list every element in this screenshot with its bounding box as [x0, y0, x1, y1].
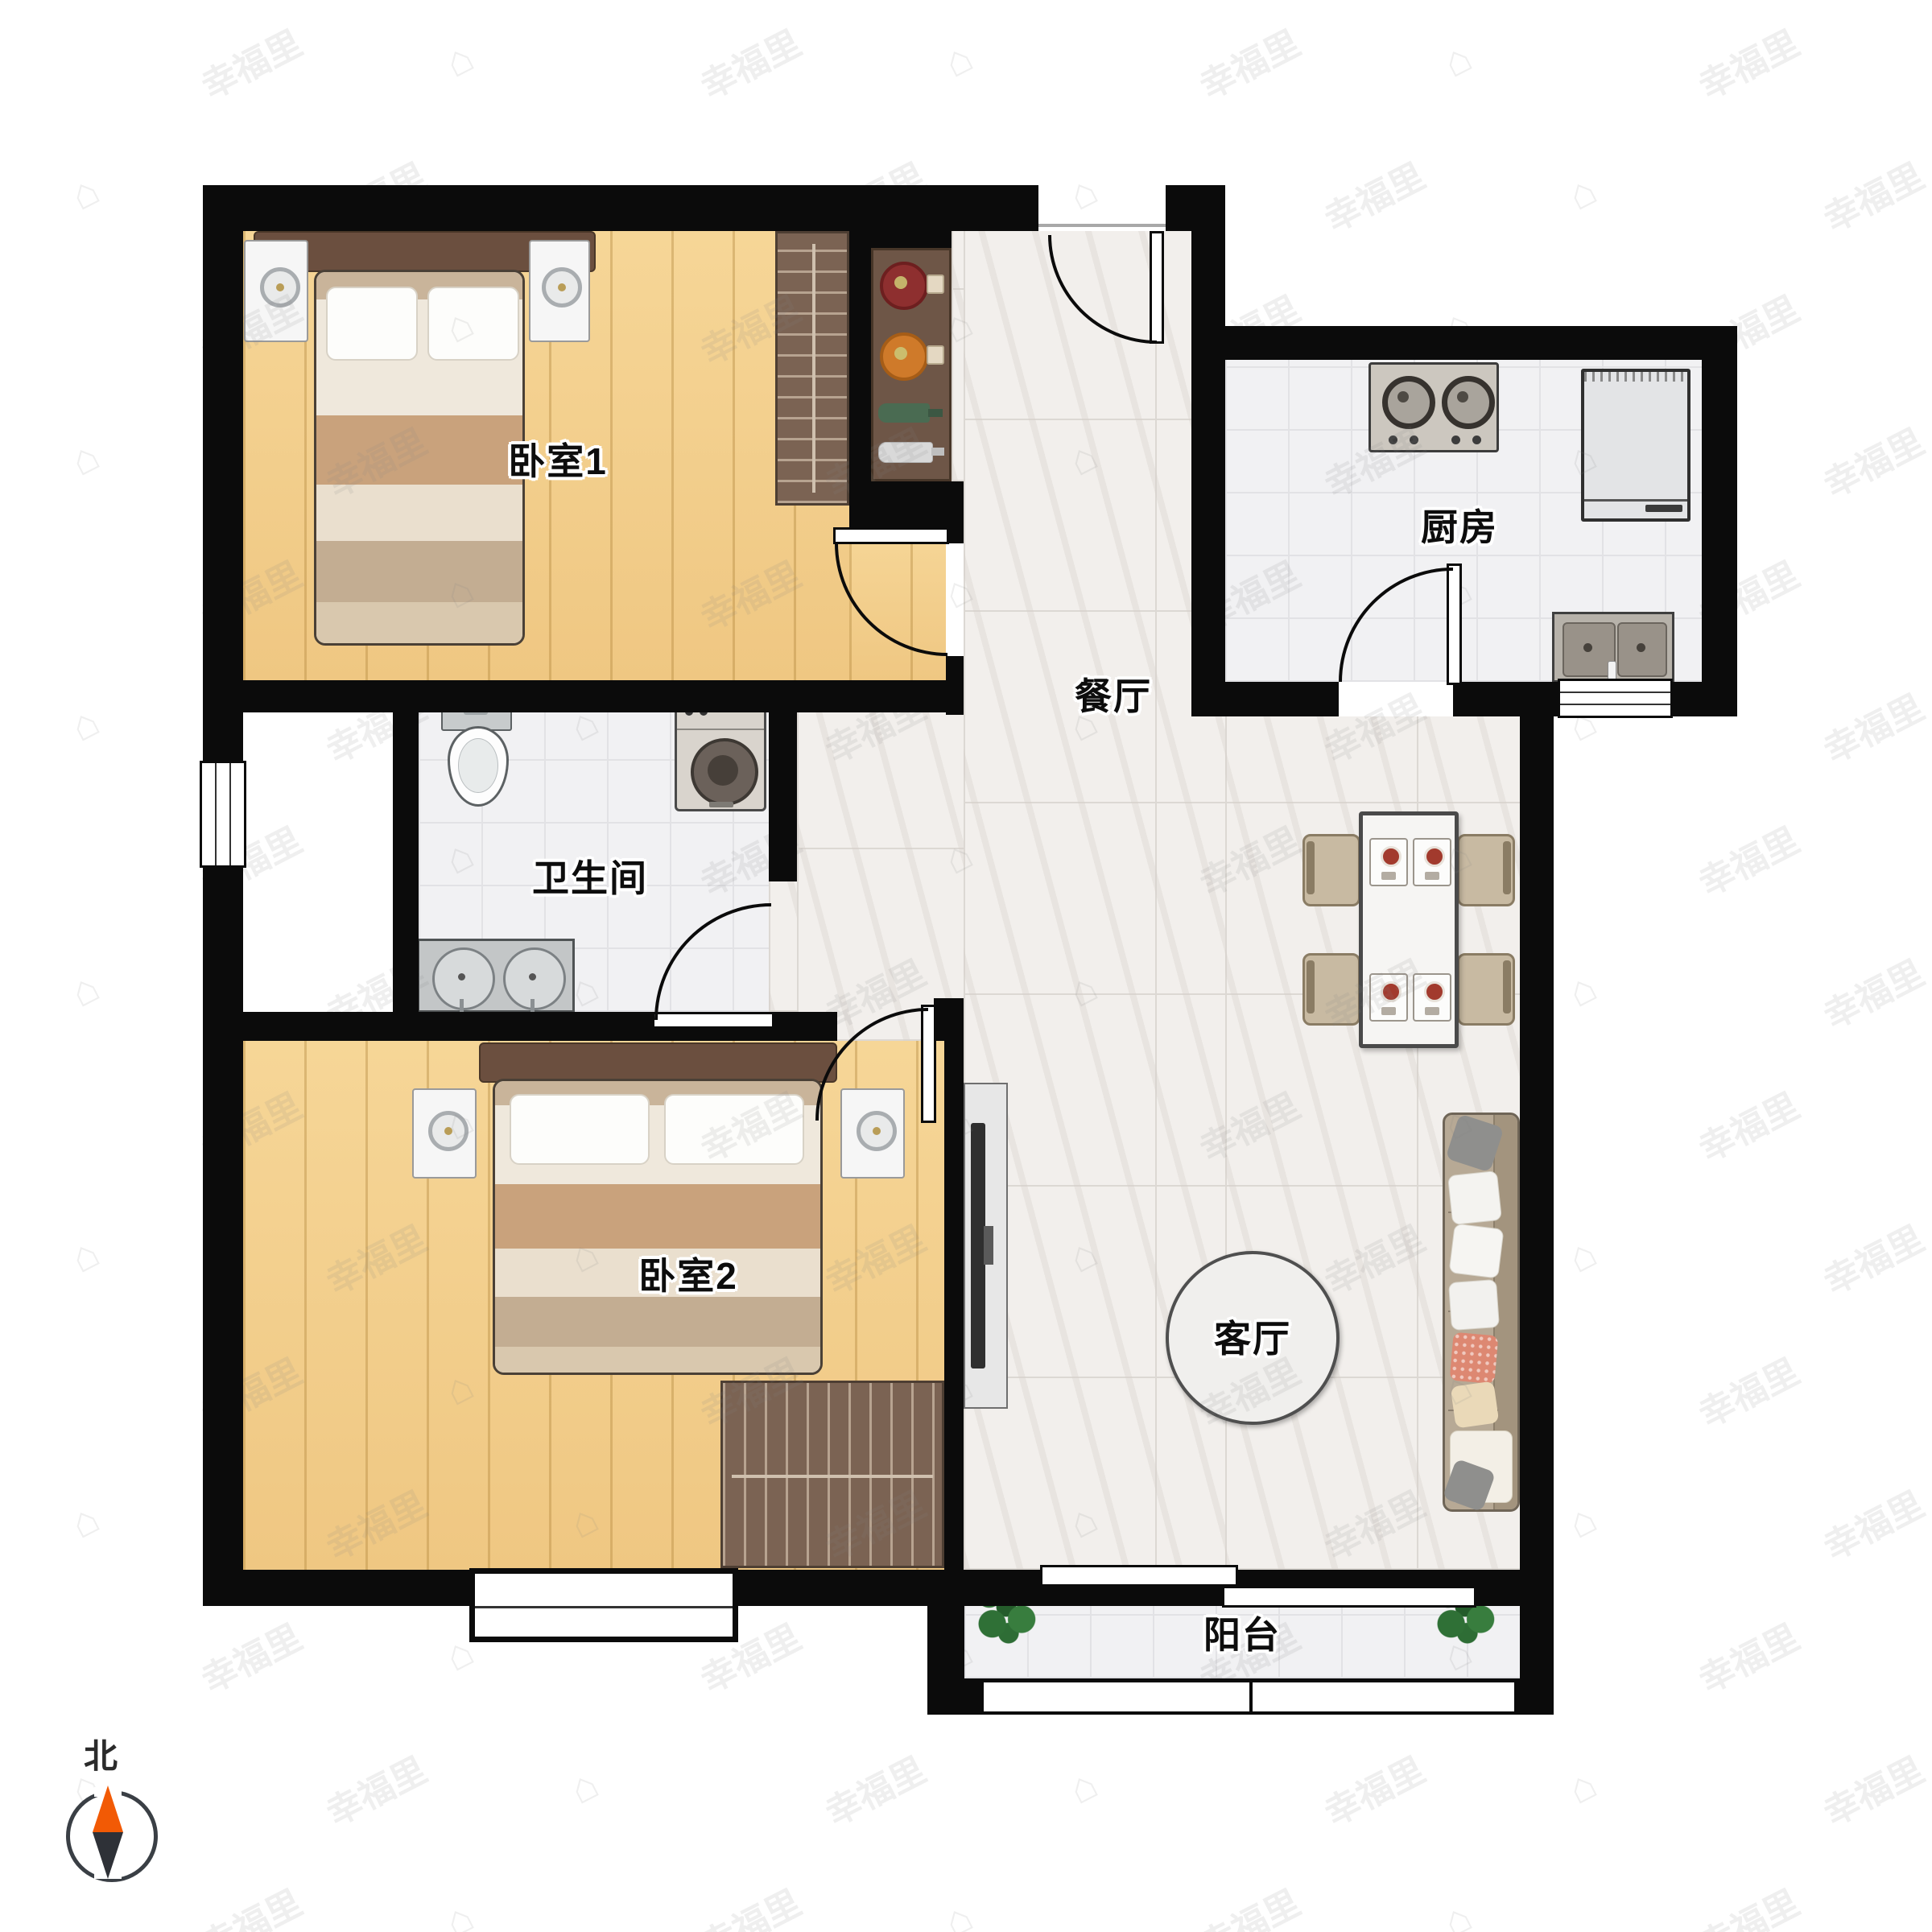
watermark-text: 幸福里: [1814, 1742, 1932, 1836]
watermark-text: 幸福里: [1814, 148, 1932, 242]
watermark-house-icon: ⌂: [1560, 1494, 1604, 1549]
bedroom2-nightstand-left: [412, 1088, 477, 1179]
watermark-house-icon: ⌂: [1560, 963, 1604, 1018]
watermark-house-icon: ⌂: [63, 1228, 107, 1283]
watermark-text: 幸福里: [192, 1875, 310, 1932]
wardrobe-rail: [732, 1475, 933, 1478]
dining-chair-bottom-left: [1302, 953, 1360, 1026]
tv-mount: [984, 1226, 993, 1265]
white-bottle-neck: [931, 448, 944, 456]
wall-bedroom2-bottom-left: [203, 1570, 479, 1606]
watermark-house-icon: ⌂: [1560, 166, 1604, 221]
bowl-cup: [927, 345, 944, 365]
wall-bedroom1-bottom: [203, 680, 964, 712]
dining-chair-bottom-right: [1457, 953, 1515, 1026]
stove-knob: [1472, 436, 1481, 444]
watermark-house-icon: ⌂: [1560, 1228, 1604, 1283]
kitchen-sink-counter: [1552, 612, 1674, 683]
wall-kitchen-right: [1702, 326, 1737, 716]
watermark-text: 幸福里: [691, 1875, 809, 1932]
bedroom1-nightstand-left: [244, 240, 308, 342]
burner-center: [1457, 391, 1468, 402]
sofa-pillow-white: [1448, 1279, 1500, 1331]
burner-center: [1397, 391, 1409, 402]
watermark-house-icon: ⌂: [437, 1893, 481, 1932]
wall-top-left-of-entry: [203, 185, 1038, 231]
wall-left: [203, 185, 243, 1606]
room-label-bathroom: 卫生间: [532, 849, 648, 902]
wall-below-shelf: [849, 481, 964, 527]
wall-bathroom-left: [393, 712, 419, 1041]
tv-screen: [971, 1123, 985, 1368]
balcony-sliding-panel-left: [1040, 1565, 1238, 1587]
washer-foot: [709, 802, 733, 807]
compass-north-label: 北: [84, 1729, 118, 1778]
watermark-text: 幸福里: [1689, 1875, 1807, 1932]
shelf-back-strip: [952, 231, 964, 481]
white-bottle: [878, 442, 933, 463]
watermark-house-icon: ⌂: [1061, 166, 1105, 221]
watermark-text: 幸福里: [1689, 1344, 1807, 1438]
stove-knob: [1410, 436, 1418, 444]
wall-kitchen-left: [1191, 231, 1225, 716]
watermark-text: 幸福里: [1814, 1476, 1932, 1571]
sofa-pillow-white: [1447, 1170, 1502, 1225]
bathroom-door-threshold: [769, 881, 797, 1012]
pillow: [664, 1094, 804, 1165]
pillow: [326, 287, 418, 361]
room-label-dining: 餐厅: [1075, 667, 1152, 720]
sink-drain: [1637, 643, 1645, 652]
wall-bedroom2-bottom-right: [729, 1570, 964, 1606]
room-label-kitchen: 厨房: [1421, 498, 1498, 551]
dining-chair-top-right: [1457, 834, 1515, 906]
kitchen-window: [1558, 679, 1673, 718]
stove-knob: [1451, 436, 1460, 444]
pillow: [510, 1094, 650, 1165]
sofa-pillow-coral: [1449, 1332, 1498, 1385]
watermark-text: 幸福里: [1814, 945, 1932, 1039]
place-setting: [1369, 838, 1408, 886]
watermark-house-icon: ⌂: [63, 1494, 107, 1549]
room-label-bedroom2: 卧室2: [638, 1247, 738, 1300]
compass-needle-south: [93, 1832, 123, 1879]
watermark-text: 幸福里: [1315, 1742, 1433, 1836]
vanity-drain: [529, 973, 536, 980]
wall-bathroom-right: [769, 712, 797, 881]
bedroom1-nightstand-right: [529, 240, 590, 342]
bedroom2-bed: [493, 1079, 823, 1375]
watermark-house-icon: ⌂: [936, 1893, 980, 1932]
room-label-bedroom1: 卧室1: [508, 432, 608, 485]
fridge-door-split: [1584, 499, 1687, 502]
compass: 北: [48, 1723, 177, 1892]
display-shelf: [871, 248, 952, 481]
stove-knob: [1389, 436, 1397, 444]
pillow: [427, 287, 519, 361]
watermark-text: 幸福里: [1190, 1875, 1308, 1932]
watermark-text: 幸福里: [1315, 148, 1433, 242]
bathroom-window: [200, 761, 246, 868]
watermark-text: 幸福里: [192, 1609, 310, 1703]
burner: [1442, 376, 1495, 429]
washing-machine: [675, 699, 766, 811]
floor-plan: 幸福里⌂幸福里⌂幸福里⌂幸福里⌂幸福里⌂⌂幸福里⌂幸福里⌂幸福里⌂幸福里⌂幸福里…: [0, 0, 1932, 1932]
dining-chair-top-left: [1302, 834, 1360, 906]
washer-panel-line: [677, 729, 764, 730]
wall-bedroom2-right: [944, 1041, 964, 1570]
fridge: [1581, 369, 1690, 522]
hallway-floor: [797, 712, 964, 1041]
watermark-text: 幸福里: [1814, 414, 1932, 508]
burner: [1382, 376, 1435, 429]
watermark-text: 幸福里: [192, 15, 310, 109]
fridge-handle: [1645, 505, 1682, 512]
bedroom1-bed: [314, 270, 525, 646]
balcony-sliding-panel-right: [1222, 1586, 1476, 1608]
balcony-window: [980, 1679, 1517, 1715]
dining-table: [1359, 811, 1459, 1048]
watermark-text: 幸福里: [1814, 679, 1932, 774]
wall-bedroom2-top-right-stub: [934, 998, 964, 1041]
watermark-house-icon: ⌂: [63, 963, 107, 1018]
watermark-text: 幸福里: [1689, 15, 1807, 109]
fridge-vent: [1584, 372, 1687, 382]
entry-threshold: [1038, 224, 1166, 227]
place-setting: [1369, 973, 1408, 1022]
compass-needle-north: [93, 1785, 123, 1832]
watermark-text: 幸福里: [1190, 15, 1308, 109]
sink-drain: [1583, 643, 1592, 652]
watermark-text: 幸福里: [815, 1742, 934, 1836]
bedroom2-bay-window: [469, 1568, 738, 1642]
watermark-text: 幸福里: [1689, 812, 1807, 906]
watermark-house-icon: ⌂: [562, 1760, 606, 1814]
green-bottle-neck: [928, 409, 943, 417]
sofa: [1443, 1113, 1520, 1512]
place-setting: [1413, 838, 1451, 886]
sofa-pillow-white: [1448, 1223, 1504, 1278]
watermark-text: 幸福里: [316, 1742, 435, 1836]
watermark-house-icon: ⌂: [63, 431, 107, 486]
bedroom1-wardrobe: [775, 231, 849, 506]
room-label-balcony: 阳台: [1203, 1606, 1281, 1659]
watermark-house-icon: ⌂: [63, 166, 107, 221]
watermark-house-icon: ⌂: [936, 33, 980, 88]
watermark-text: 幸福里: [691, 15, 809, 109]
orange-bowl-center: [894, 347, 907, 360]
wall-shelf-cap-top: [849, 231, 952, 248]
wall-kitchen-bottom-left: [1225, 682, 1339, 716]
watermark-house-icon: ⌂: [1061, 1760, 1105, 1814]
watermark-house-icon: ⌂: [1435, 1893, 1480, 1932]
stove: [1368, 362, 1499, 452]
watermark-house-icon: ⌂: [1560, 1760, 1604, 1814]
bedroom2-headboard: [479, 1042, 837, 1083]
bowl-cup: [927, 275, 944, 294]
wardrobe-rail: [812, 244, 815, 492]
sofa-pillow-cream: [1451, 1381, 1500, 1428]
watermark-text: 幸福里: [1689, 1609, 1807, 1703]
place-setting: [1413, 973, 1451, 1022]
bedroom2-wardrobe: [720, 1381, 944, 1568]
toilet-bowl-inner: [458, 738, 498, 793]
bedroom1-door-leaf: [833, 527, 949, 544]
bathroom-vanity: [417, 939, 575, 1013]
watermark-house-icon: ⌂: [63, 697, 107, 752]
watermark-house-icon: ⌂: [1435, 33, 1480, 88]
wall-living-right: [1520, 716, 1554, 1715]
watermark-house-icon: ⌂: [437, 33, 481, 88]
wall-top-right-of-entry: [1166, 185, 1225, 231]
washer-drum-inner: [708, 755, 738, 786]
green-bottle: [878, 403, 930, 423]
room-label-living: 客厅: [1214, 1310, 1291, 1363]
watermark-text: 幸福里: [1689, 1078, 1807, 1172]
wall-bedroom1-right: [849, 231, 871, 499]
red-bowl-center: [894, 276, 907, 289]
vanity-drain: [458, 973, 465, 980]
wall-kitchen-top: [1225, 326, 1737, 360]
watermark-text: 幸福里: [1814, 1211, 1932, 1305]
